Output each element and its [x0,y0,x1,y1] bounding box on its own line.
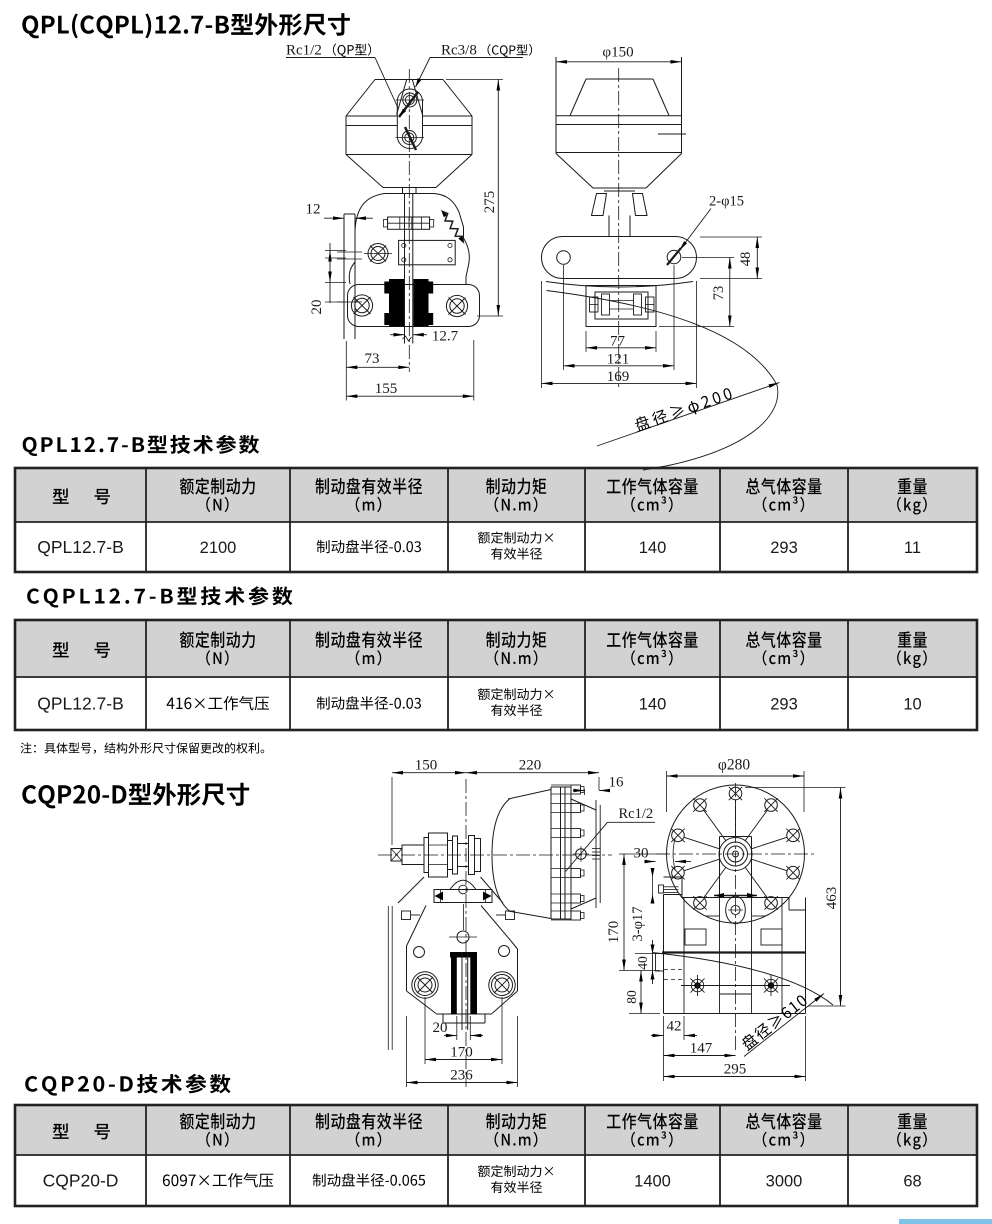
svg-text:170: 170 [606,921,622,944]
svg-text:77: 77 [610,333,626,349]
svg-text:10: 10 [903,696,921,714]
svg-text:73: 73 [365,351,380,367]
svg-text:220: 220 [519,758,542,774]
svg-text:68: 68 [903,1173,921,1191]
svg-text:140: 140 [639,696,667,714]
svg-text:2100: 2100 [200,539,237,557]
svg-text:48: 48 [738,252,754,267]
svg-text:20: 20 [309,300,325,315]
svg-text:40: 40 [635,956,650,970]
svg-text:3000: 3000 [766,1173,803,1191]
svg-text:140: 140 [639,539,667,557]
svg-text:QPL12.7-B: QPL12.7-B [37,694,124,714]
svg-text:Rc3/8: Rc3/8 [441,43,477,59]
svg-text:Rc1/2: Rc1/2 [619,806,654,822]
svg-text:463: 463 [824,887,840,910]
svg-text:169: 169 [607,369,630,385]
svg-text:2-φ15: 2-φ15 [709,194,744,210]
svg-text:155: 155 [375,381,398,397]
svg-text:11: 11 [904,539,921,557]
svg-text:12.7: 12.7 [432,329,459,345]
svg-text:φ280: φ280 [718,757,750,774]
svg-text:16: 16 [609,775,625,791]
svg-text:12: 12 [306,202,321,218]
svg-text:150: 150 [415,758,438,774]
svg-text:30: 30 [634,846,649,862]
svg-text:293: 293 [770,539,798,557]
svg-text:QPL12.7-B: QPL12.7-B [37,537,124,557]
svg-text:73: 73 [711,286,727,301]
svg-text:1400: 1400 [634,1173,671,1191]
svg-text:275: 275 [482,191,498,214]
svg-text:42: 42 [667,1019,682,1035]
svg-text:Rc1/2: Rc1/2 [286,43,322,59]
svg-text:121: 121 [607,351,630,367]
svg-text:295: 295 [724,1062,747,1078]
svg-text:170: 170 [450,1045,473,1061]
svg-text:20: 20 [433,1020,448,1036]
svg-text:80: 80 [624,990,639,1004]
svg-text:293: 293 [770,696,798,714]
svg-text:147: 147 [690,1041,713,1057]
svg-text:3-φ17: 3-φ17 [630,907,646,942]
svg-text:236: 236 [450,1068,473,1084]
svg-text:φ150: φ150 [602,45,633,61]
svg-text:CQP20-D: CQP20-D [43,1171,119,1191]
